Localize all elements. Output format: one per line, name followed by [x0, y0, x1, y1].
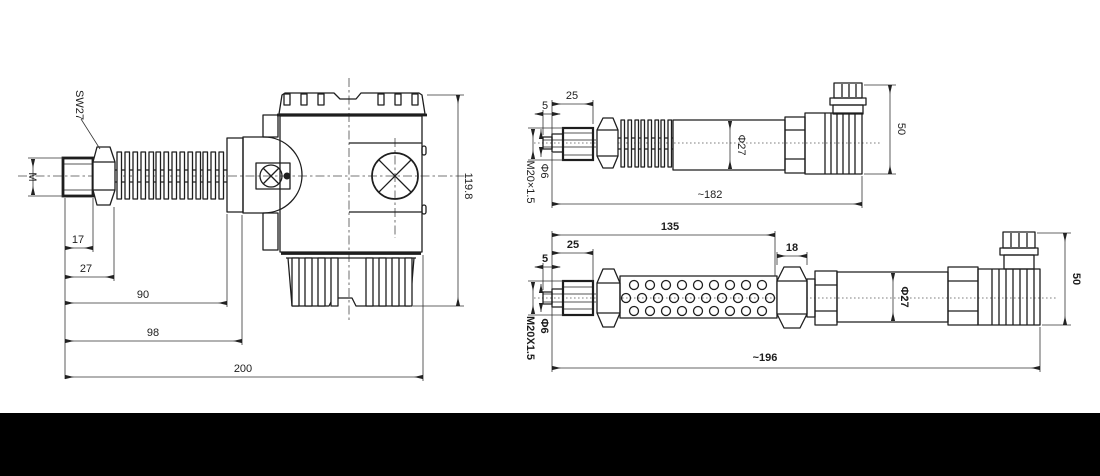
hex-nut [93, 147, 115, 205]
sw27-leader [81, 119, 100, 149]
perforated-probe-view: 135 25 5 18 M20X1.5 Φ6 Φ27 [524, 221, 1082, 372]
dim-label-sw27: SW27 [73, 90, 85, 120]
side-view: SW27 M 17 27 90 98 200 11 [18, 78, 474, 381]
process-connection [63, 138, 243, 212]
large-hex-nut [777, 267, 807, 328]
pin-dot [284, 173, 291, 180]
bore-lines [543, 140, 596, 147]
hex-nut [597, 269, 620, 327]
dim-label-length-182: ~182 [698, 189, 723, 201]
hinge-pin-top [422, 146, 426, 155]
technical-drawing-page: SW27 M 17 27 90 98 200 11 [0, 0, 1100, 476]
hinge-pin-bottom [422, 205, 426, 214]
dim-label-18: 18 [786, 242, 798, 254]
side-view-dimensions: SW27 M 17 27 90 98 200 11 [26, 90, 474, 381]
dim-label-dia-phi27: Φ27 [898, 286, 910, 307]
cable-connector [830, 83, 866, 114]
dim-label-thread-m20: M20×1.5 [524, 160, 536, 203]
dim-label-dia-phi27: Φ27 [735, 134, 747, 155]
dim-label-135: 135 [661, 221, 679, 233]
probe-body [543, 83, 866, 174]
dim-label-thread-m: M [26, 172, 38, 181]
dim-label-height-119-8: 119.8 [462, 173, 474, 200]
dim-label-98: 98 [147, 327, 159, 339]
dim-label-25: 25 [567, 239, 579, 251]
perforated-cooling-tube [620, 276, 777, 318]
dim-label-5: 5 [542, 100, 548, 112]
dim-label-5: 5 [542, 253, 548, 265]
bottom-cap-fins [281, 254, 421, 307]
sensor-cylinder [837, 272, 948, 322]
pressure-transmitter-drawing: SW27 M 17 27 90 98 200 11 [0, 0, 1100, 476]
ribbed-housing [978, 269, 1040, 325]
hex-coupling [785, 117, 805, 173]
dim-label-25: 25 [566, 90, 578, 102]
sensor-cylinder [673, 120, 785, 170]
ribbed-housing [805, 113, 862, 174]
mounting-bracket [243, 115, 302, 250]
cable-connector [1000, 232, 1038, 269]
adapter-block [227, 138, 243, 212]
dim-label-height-50: 50 [895, 123, 907, 135]
hex-nut [597, 118, 618, 168]
compact-probe-view: 25 5 M20×1.5 Φ6 Φ27 50 ~182 [524, 83, 907, 208]
dim-label-200: 200 [234, 363, 252, 375]
dim-label-90: 90 [137, 289, 149, 301]
hex-coupling-2 [948, 267, 978, 325]
dim-label-27: 27 [80, 263, 92, 275]
dim-label-height-50: 50 [1070, 273, 1082, 285]
transmitter-housing [277, 93, 427, 306]
dim-label-17: 17 [72, 234, 84, 246]
dim-label-thread-m20: M20X1.5 [524, 316, 536, 360]
bottom-bar [0, 413, 1100, 476]
dim-label-bore-phi6: Φ6 [538, 318, 550, 333]
dim-label-length-196: ~196 [753, 352, 778, 364]
dim-label-bore-phi6: Φ6 [538, 164, 550, 179]
connector-gland [834, 83, 862, 98]
cooling-fins [618, 120, 673, 167]
heat-sink-fins [115, 152, 227, 199]
